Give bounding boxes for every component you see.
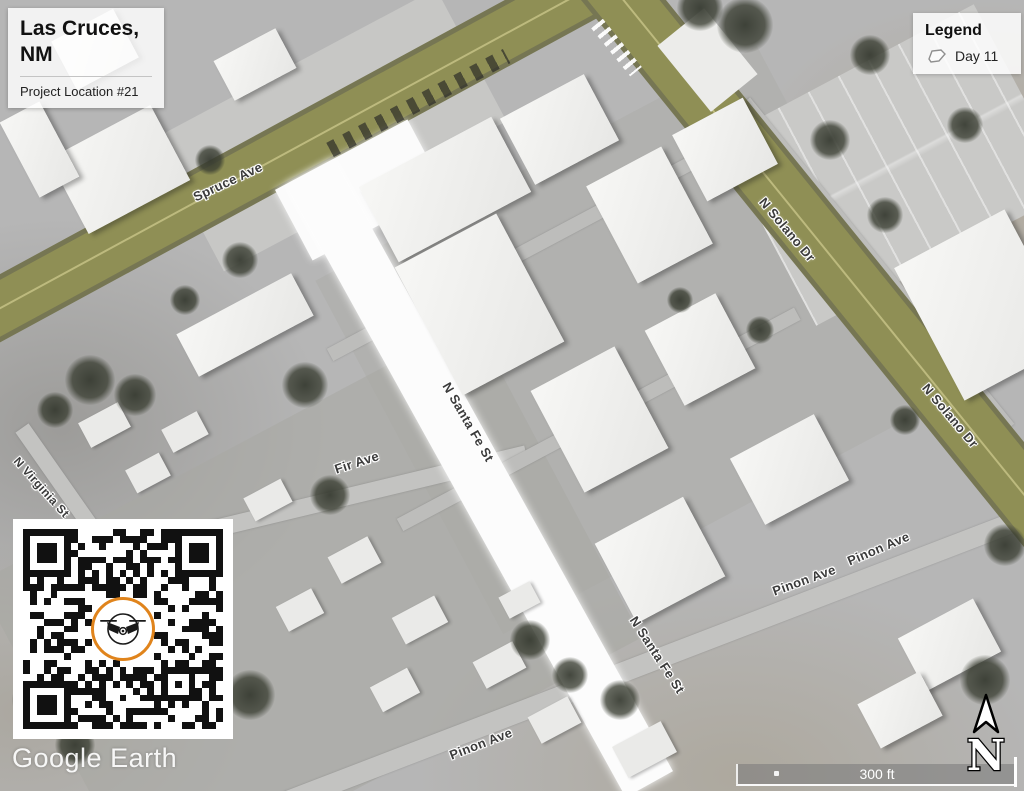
tree-canopy: [890, 405, 920, 435]
svg-text:N: N: [967, 731, 1005, 778]
scale-bar-label: 300 ft: [859, 766, 894, 782]
scale-bar-dot: [774, 771, 779, 776]
scale-bar-tick: [1014, 757, 1017, 787]
map-title-line1: Las Cruces,: [20, 16, 152, 42]
tree-canopy: [717, 0, 773, 53]
tree-canopy: [600, 680, 640, 720]
tree-canopy: [195, 145, 225, 175]
tree-canopy: [850, 35, 890, 75]
drone-icon: [99, 612, 147, 646]
map-canvas: Spruce Ave N Solano Dr N Solano Dr N San…: [0, 0, 1024, 791]
polygon-outline-icon: [925, 48, 947, 64]
legend-item-label: Day 11: [955, 48, 998, 64]
tree-canopy: [170, 285, 200, 315]
north-arrow-icon: [974, 695, 998, 732]
tree-canopy: [746, 316, 774, 344]
tree-canopy: [510, 620, 550, 660]
drone-logo: [91, 597, 155, 661]
title-box: Las Cruces, NM Project Location #21: [8, 8, 164, 108]
tree-canopy: [310, 475, 350, 515]
house: [161, 411, 209, 453]
google-earth-watermark: Google Earth: [12, 743, 177, 774]
qr-code: [13, 519, 233, 739]
north-arrow: N: [958, 692, 1014, 783]
tree-canopy: [282, 362, 328, 408]
legend-title: Legend: [925, 22, 1011, 40]
tree-canopy: [37, 392, 73, 428]
map-title-line2: NM: [20, 42, 152, 68]
building: [176, 273, 313, 376]
tree-canopy: [65, 355, 115, 405]
tree-canopy: [867, 197, 903, 233]
tree-canopy: [810, 120, 850, 160]
tree-canopy: [667, 287, 693, 313]
map-subtitle: Project Location #21: [20, 76, 152, 99]
legend-item-day-11: Day 11: [925, 48, 1011, 64]
tree-canopy: [114, 374, 156, 416]
tree-canopy: [947, 107, 983, 143]
tree-canopy: [552, 657, 588, 693]
legend: Legend Day 11: [913, 13, 1021, 74]
tree-canopy: [984, 524, 1024, 566]
tree-canopy: [222, 242, 258, 278]
